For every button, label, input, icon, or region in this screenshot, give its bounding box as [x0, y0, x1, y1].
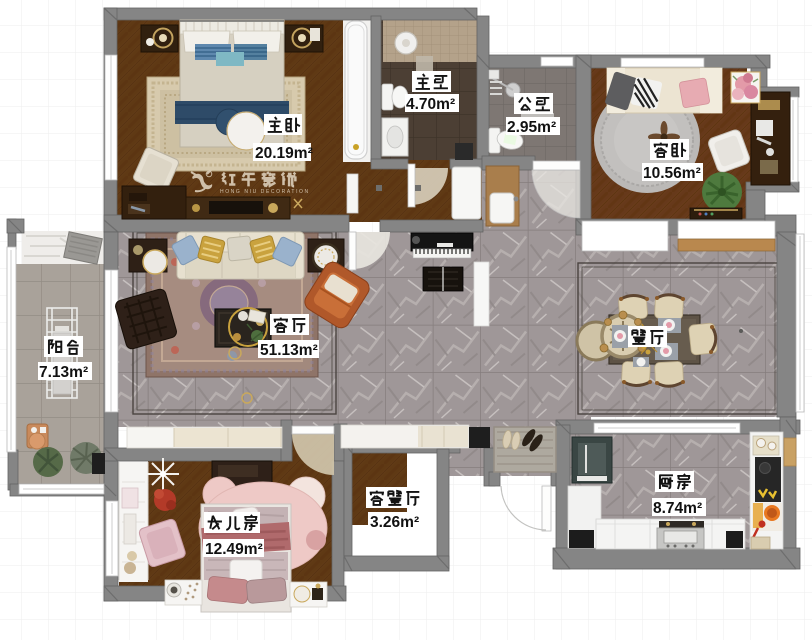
svg-text:3.26m²: 3.26m²: [370, 514, 419, 531]
svg-text:2.95m²: 2.95m²: [507, 119, 556, 136]
svg-text:HONG NIU DECORATION: HONG NIU DECORATION: [220, 189, 310, 195]
svg-text:12.49m²: 12.49m²: [205, 541, 263, 558]
svg-text:4.70m²: 4.70m²: [406, 96, 455, 113]
svg-text:20.19m²: 20.19m²: [255, 145, 313, 162]
svg-text:8.74m²: 8.74m²: [653, 500, 702, 517]
svg-text:10.56m²: 10.56m²: [643, 165, 701, 182]
svg-text:51.13m²: 51.13m²: [260, 342, 318, 359]
svg-text:7.13m²: 7.13m²: [39, 364, 88, 381]
